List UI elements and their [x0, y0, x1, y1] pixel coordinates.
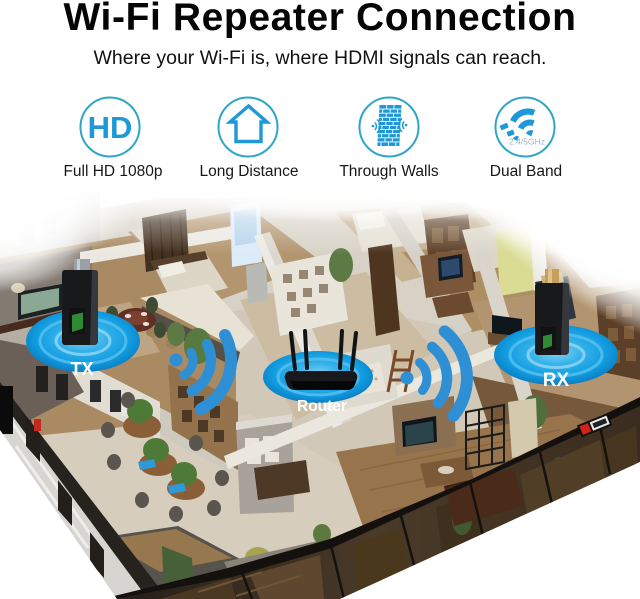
svg-text:TX: TX — [70, 359, 93, 379]
svg-text:Router: Router — [297, 398, 347, 415]
svg-text:RX: RX — [543, 370, 570, 391]
